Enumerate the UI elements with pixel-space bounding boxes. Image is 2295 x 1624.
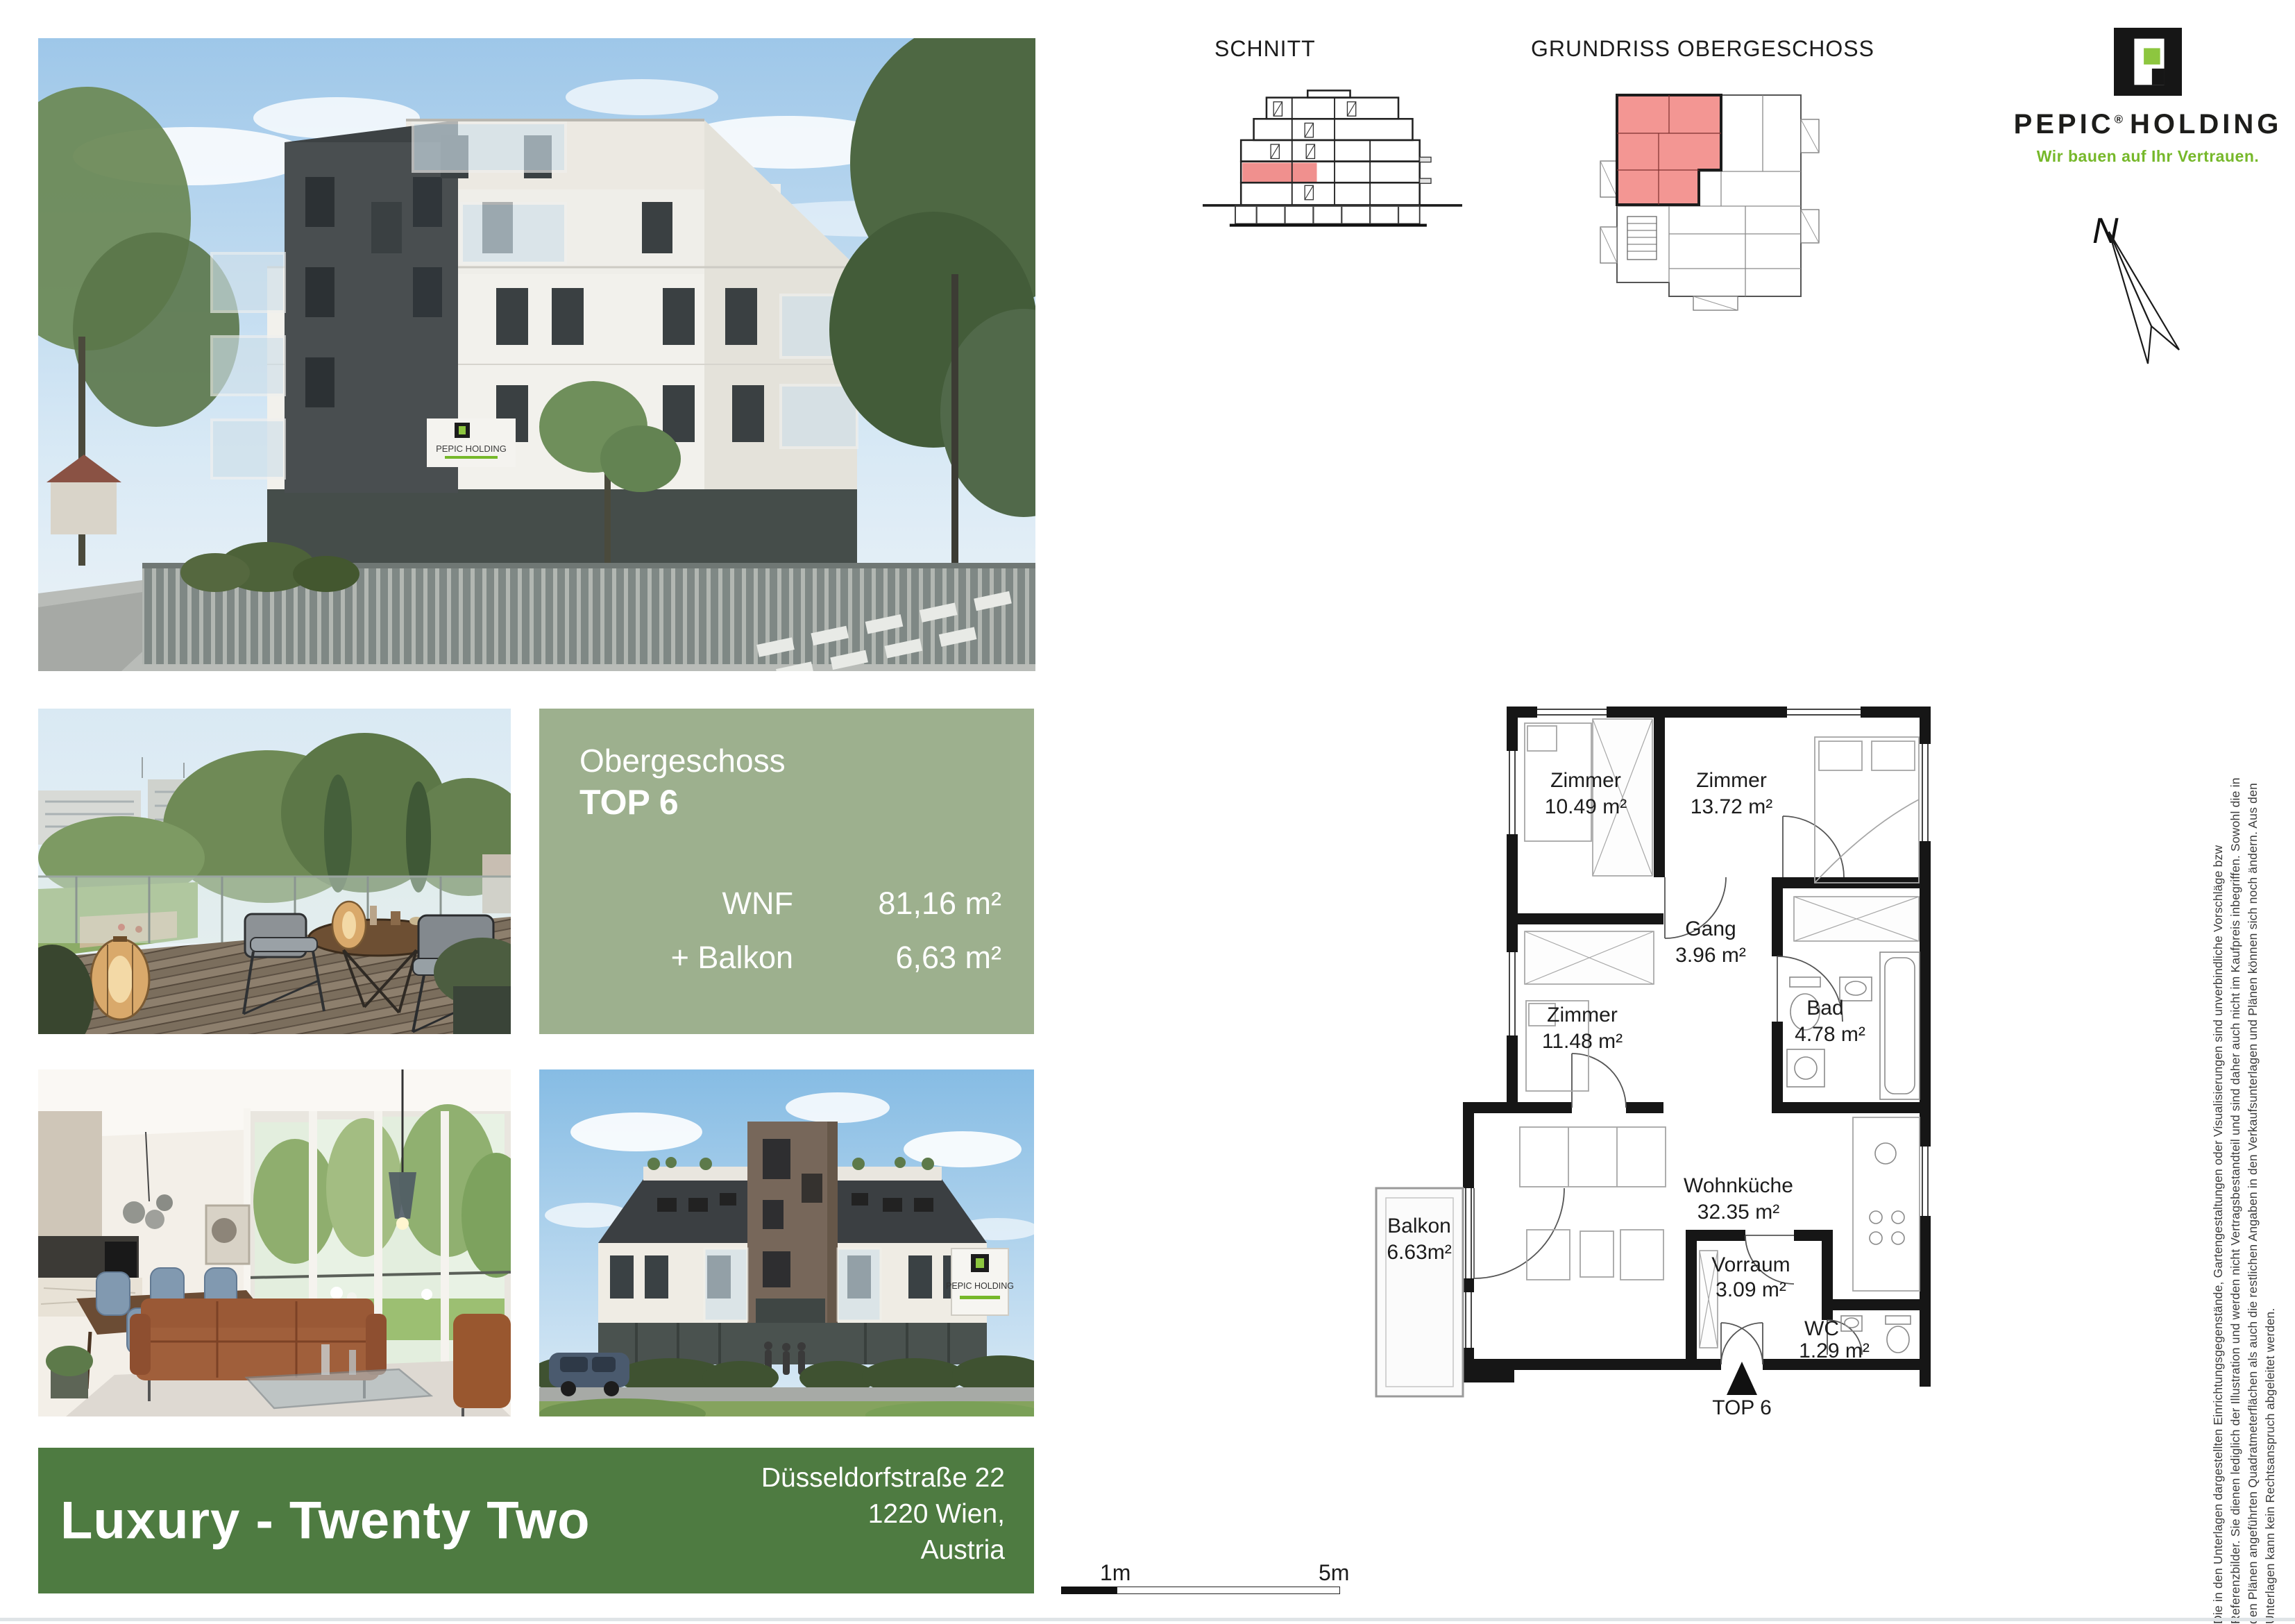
metric-value: 6,63 m²	[793, 940, 1001, 976]
photo-interior	[38, 1069, 511, 1416]
logo-tagline: Wir bauen auf Ihr Vertrauen.	[2006, 147, 2290, 166]
project-address: Düsseldorfstraße 22 1220 Wien, Austria	[761, 1460, 1005, 1568]
schnitt-drawing	[1201, 78, 1464, 241]
section-drawing	[1201, 78, 1464, 241]
room-area: 11.48 m²	[1542, 1030, 1623, 1053]
interior-illustration	[38, 1069, 511, 1416]
photo-terrace	[38, 709, 511, 1034]
unit-info-box: Obergeschoss TOP 6 WNF 81,16 m² + Balkon…	[539, 709, 1034, 1034]
room-area: 10.49 m²	[1545, 795, 1627, 818]
room-area: 4.78 m²	[1795, 1023, 1865, 1046]
unit-metrics: WNF 81,16 m² + Balkon 6,63 m²	[661, 886, 1001, 994]
apartment-floorplan-drawing: Zimmer 10.49 m² Zimmer 13.72 m² Gang 3.9…	[1371, 702, 1936, 1419]
disclaimer-line: Die in den Unterlagen dargestellten Einr…	[2210, 797, 2227, 1624]
metric-value: 81,16 m²	[793, 886, 1001, 922]
scale-bar-black	[1061, 1587, 1118, 1594]
lantern-small	[332, 902, 366, 949]
room-area: 13.72 m²	[1691, 795, 1772, 818]
room-label: Zimmer	[1696, 769, 1767, 792]
disclaimer-line: Referenzbilder. Sie dienen lediglich der…	[2227, 797, 2244, 1624]
room-label: Zimmer	[1550, 769, 1621, 792]
room-area: 6.63m²	[1387, 1241, 1451, 1264]
entrance-label: TOP 6	[1712, 1396, 1772, 1419]
photo-building-exterior: PEPIC HOLDING	[38, 38, 1035, 671]
disclaimer-line: Unterlagen kann kein Rechtsanspruch abge…	[2262, 797, 2279, 1624]
metric-label: + Balkon	[661, 940, 793, 976]
metric-row-balkon: + Balkon 6,63 m²	[661, 940, 1001, 976]
room-label: WC	[1804, 1317, 1839, 1340]
room-area: 1.29 m²	[1799, 1339, 1870, 1362]
facade-sign: PEPIC HOLDING	[427, 418, 516, 467]
schnitt-label: SCHNITT	[1214, 36, 1316, 62]
project-title: Luxury - Twenty Two	[60, 1491, 591, 1551]
grundriss-drawing	[1589, 78, 1832, 314]
floor-label: Obergeschoss	[579, 742, 786, 779]
facade-sign-2: PEPIC HOLDING	[946, 1249, 1014, 1315]
facade-sign-2-text: PEPIC HOLDING	[946, 1281, 1014, 1291]
room-area: 3.96 m²	[1675, 944, 1746, 967]
room-label: Bad	[1806, 997, 1843, 1020]
footer-bar: Luxury - Twenty Two Düsseldorfstraße 22 …	[38, 1448, 1034, 1593]
room-label: Zimmer	[1547, 1004, 1618, 1026]
scale-bar-white	[1117, 1587, 1340, 1594]
address-line-2: 1220 Wien,	[761, 1496, 1005, 1532]
north-arrow: N	[2085, 203, 2190, 369]
logo-brand2: HOLDING	[2130, 109, 2282, 139]
room-area: 32.35 m²	[1697, 1201, 1779, 1224]
apartment-floorplan: Zimmer 10.49 m² Zimmer 13.72 m² Gang 3.9…	[1371, 702, 1936, 1419]
expose-page: { "header": { "schnitt_label": "SCHNITT"…	[0, 0, 2295, 1623]
logo-mark-icon	[2114, 28, 2182, 96]
address-line-1: Düsseldorfstraße 22	[761, 1460, 1005, 1496]
entrance-marker-icon	[1727, 1362, 1757, 1395]
scale-tick-1m: 1m	[1100, 1560, 1130, 1586]
company-logo: PEPIC®HOLDING Wir bauen auf Ihr Vertraue…	[2006, 28, 2290, 166]
scale-tick-5m: 5m	[1319, 1560, 1349, 1586]
room-label: Balkon	[1387, 1215, 1451, 1237]
metric-row-wnf: WNF 81,16 m²	[661, 886, 1001, 922]
room-label: Wohnküche	[1684, 1174, 1793, 1197]
building-exterior-illustration: PEPIC HOLDING	[38, 38, 1035, 671]
logo-wordmark: PEPIC®HOLDING	[2006, 109, 2290, 140]
logo-brand1: PEPIC	[2014, 109, 2115, 139]
unit-label: TOP 6	[579, 782, 679, 822]
room-label: Gang	[1685, 917, 1736, 940]
room-label: Vorraum	[1711, 1253, 1790, 1276]
north-arrow-icon: N	[2085, 203, 2190, 369]
grundriss-label: GRUNDRISS OBERGESCHOSS	[1531, 36, 1874, 62]
room-area: 3.09 m²	[1716, 1278, 1786, 1301]
terrace-illustration	[38, 709, 511, 1034]
floorplan-thumbnail	[1589, 78, 1832, 314]
registered-mark: ®	[2115, 113, 2123, 126]
legal-disclaimer: Die in den Unterlagen dargestellten Einr…	[2210, 797, 2280, 1624]
page-bottom-edge	[0, 1618, 2295, 1621]
disclaimer-line: den Plänen angeführten Quadratmeterfläch…	[2244, 797, 2262, 1624]
building-front-illustration: PEPIC HOLDING	[539, 1069, 1034, 1416]
address-line-3: Austria	[761, 1532, 1005, 1568]
photo-building-front: PEPIC HOLDING	[539, 1069, 1034, 1416]
facade-sign-text: PEPIC HOLDING	[436, 443, 507, 454]
metric-label: WNF	[661, 886, 793, 922]
